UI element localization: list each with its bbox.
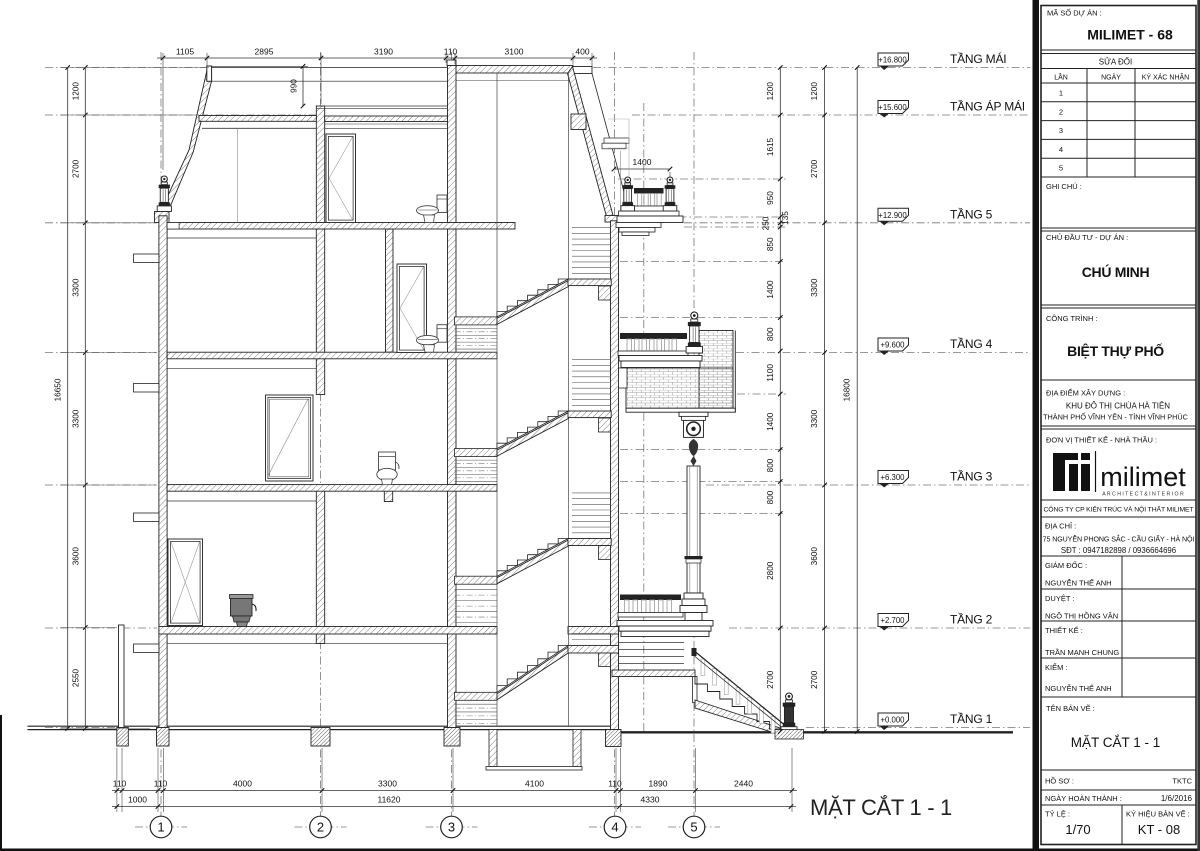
svg-text:ĐỊA CHỈ :: ĐỊA CHỈ :	[1045, 522, 1076, 531]
svg-text:75 NGUYỄN PHONG SẮC - CẦU GIẤY: 75 NGUYỄN PHONG SẮC - CẦU GIẤY - HÀ NỘI	[1043, 534, 1195, 544]
svg-text:400: 400	[575, 47, 589, 57]
svg-text:+16.800: +16.800	[878, 56, 907, 65]
svg-text:800: 800	[766, 327, 775, 341]
svg-text:2440: 2440	[734, 779, 753, 789]
svg-text:MÃ SỐ DỰ ÁN :: MÃ SỐ DỰ ÁN :	[1047, 8, 1102, 18]
svg-text:1000: 1000	[128, 795, 147, 805]
svg-text:2700: 2700	[72, 159, 81, 178]
svg-text:+2.700: +2.700	[880, 616, 905, 625]
svg-text:110: 110	[113, 779, 127, 789]
svg-text:1400: 1400	[766, 280, 775, 299]
svg-text:SĐT : 0947182898 / 0936664696: SĐT : 0947182898 / 0936664696	[1061, 546, 1176, 555]
svg-text:2550: 2550	[72, 668, 81, 687]
svg-text:NGÔ THỊ HỒNG VÂN: NGÔ THỊ HỒNG VÂN	[1045, 611, 1118, 621]
svg-text:1200: 1200	[72, 82, 81, 101]
svg-text:3: 3	[1059, 126, 1063, 135]
svg-text:KHU ĐÔ THỊ CHÙA HÀ TIÊN: KHU ĐÔ THỊ CHÙA HÀ TIÊN	[1066, 402, 1170, 411]
svg-text:1/70: 1/70	[1065, 822, 1090, 837]
svg-text:3: 3	[448, 820, 455, 835]
svg-text:KT - 08: KT - 08	[1138, 822, 1180, 837]
svg-text:TRẦN MẠNH CHUNG: TRẦN MẠNH CHUNG	[1045, 647, 1119, 657]
svg-text:SỬA ĐỔI: SỬA ĐỔI	[1099, 58, 1133, 67]
svg-text:ĐƠN VỊ THIẾT KẾ - NHÀ THẦU :: ĐƠN VỊ THIẾT KẾ - NHÀ THẦU :	[1046, 435, 1157, 445]
svg-text:KÝ XÁC NHẬN: KÝ XÁC NHẬN	[1142, 73, 1189, 82]
svg-text:TẦNG MÁI: TẦNG MÁI	[950, 51, 1006, 66]
svg-text:KIỂM :: KIỂM :	[1045, 663, 1068, 672]
svg-text:4000: 4000	[233, 779, 252, 789]
svg-text:3300: 3300	[72, 278, 81, 297]
svg-text:1200: 1200	[766, 82, 775, 101]
svg-text:1: 1	[1059, 89, 1063, 98]
svg-text:CÔNG TRÌNH :: CÔNG TRÌNH :	[1046, 314, 1098, 323]
svg-text:1890: 1890	[649, 779, 668, 789]
svg-text:135: 135	[781, 211, 790, 225]
svg-text:2: 2	[1059, 107, 1063, 116]
svg-text:4: 4	[611, 820, 618, 835]
svg-text:TKTC: TKTC	[1172, 777, 1192, 786]
svg-text:THÀNH PHỐ VĨNH YÊN - TỈNH VĨNH: THÀNH PHỐ VĨNH YÊN - TỈNH VĨNH PHÚC	[1043, 412, 1188, 422]
svg-text:3300: 3300	[810, 409, 819, 428]
svg-text:5: 5	[690, 820, 697, 835]
svg-text:CHÚ MINH: CHÚ MINH	[1082, 263, 1150, 280]
svg-text:+6.300: +6.300	[880, 473, 905, 482]
svg-text:16650: 16650	[54, 378, 63, 401]
svg-text:DUYỆT :: DUYỆT :	[1045, 594, 1074, 603]
svg-text:3600: 3600	[72, 547, 81, 566]
svg-text:3600: 3600	[810, 547, 819, 566]
svg-text:250: 250	[762, 216, 771, 230]
svg-text:MILIMET - 68: MILIMET - 68	[1087, 27, 1173, 43]
svg-text:HỒ SƠ :: HỒ SƠ :	[1045, 776, 1074, 786]
svg-text:5: 5	[1059, 164, 1063, 173]
svg-text:GHI CHÚ :: GHI CHÚ :	[1046, 182, 1082, 191]
svg-text:110: 110	[444, 47, 458, 57]
svg-text:1400: 1400	[766, 412, 775, 431]
svg-text:2700: 2700	[810, 159, 819, 178]
svg-text:990: 990	[290, 79, 299, 93]
svg-text:NGUYỄN THẾ ANH: NGUYỄN THẾ ANH	[1045, 683, 1112, 693]
svg-text:ĐỊA ĐIỂM XÂY DỰNG :: ĐỊA ĐIỂM XÂY DỰNG :	[1046, 389, 1125, 398]
svg-text:TÊN BẢN VẼ :: TÊN BẢN VẼ :	[1046, 704, 1095, 713]
svg-text:800: 800	[766, 458, 775, 472]
svg-text:4330: 4330	[641, 795, 660, 805]
svg-text:+9.600: +9.600	[880, 341, 905, 350]
svg-text:1400: 1400	[633, 157, 652, 167]
svg-text:3300: 3300	[810, 278, 819, 297]
svg-text:4100: 4100	[525, 779, 544, 789]
svg-text:BIỆT THỰ PHỐ: BIỆT THỰ PHỐ	[1067, 342, 1164, 359]
svg-text:TẦNG 2: TẦNG 2	[950, 612, 993, 627]
svg-text:950: 950	[766, 191, 775, 205]
svg-text:1105: 1105	[176, 47, 195, 57]
svg-text:1100: 1100	[766, 364, 775, 382]
svg-text:2700: 2700	[766, 670, 775, 689]
svg-text:TỶ LỆ :: TỶ LỆ :	[1045, 810, 1070, 819]
svg-text:NGÀY: NGÀY	[1101, 73, 1121, 82]
svg-text:+12.900: +12.900	[878, 211, 907, 220]
svg-text:4: 4	[1059, 145, 1063, 154]
svg-text:1615: 1615	[766, 137, 775, 156]
svg-text:TẦNG ÁP MÁI: TẦNG ÁP MÁI	[950, 99, 1025, 114]
svg-text:16800: 16800	[842, 378, 851, 401]
svg-text:2: 2	[317, 820, 324, 835]
svg-text:3100: 3100	[505, 47, 524, 57]
svg-text:1: 1	[157, 820, 164, 835]
svg-text:800: 800	[766, 490, 775, 504]
svg-text:MẶT CẮT 1 - 1: MẶT CẮT 1 - 1	[1071, 735, 1161, 750]
svg-text:KÝ HIỆU BẢN VẼ :: KÝ HIỆU BẢN VẼ :	[1126, 810, 1190, 819]
svg-text:3300: 3300	[72, 409, 81, 428]
svg-text:NGUYỄN THẾ ANH: NGUYỄN THẾ ANH	[1045, 578, 1112, 588]
svg-text:milimet: milimet	[1100, 462, 1186, 492]
svg-text:TẦNG 3: TẦNG 3	[950, 469, 993, 484]
svg-text:TẦNG 4: TẦNG 4	[950, 336, 993, 351]
svg-text:850: 850	[766, 237, 775, 251]
svg-text:2700: 2700	[810, 670, 819, 689]
svg-text:11620: 11620	[377, 795, 400, 805]
svg-text:3190: 3190	[374, 47, 393, 57]
svg-text:TẦNG 5: TẦNG 5	[950, 206, 993, 221]
svg-text:1200: 1200	[810, 82, 819, 101]
svg-text:110: 110	[154, 779, 168, 789]
svg-text:GIÁM ĐỐC :: GIÁM ĐỐC :	[1045, 560, 1087, 570]
svg-text:MẶT CẮT 1 - 1: MẶT CẮT 1 - 1	[810, 795, 952, 820]
svg-text:A R C H I T E C T & I N T E R: A R C H I T E C T & I N T E R I O R	[1102, 492, 1184, 498]
svg-text:110: 110	[608, 779, 622, 789]
svg-text:2895: 2895	[255, 47, 274, 57]
svg-text:TẦNG 1: TẦNG 1	[950, 711, 993, 726]
svg-text:NGÀY HOÀN THÀNH :: NGÀY HOÀN THÀNH :	[1045, 794, 1122, 803]
svg-text:1/6/2016: 1/6/2016	[1161, 794, 1193, 803]
svg-text:+15.600: +15.600	[878, 103, 907, 112]
svg-text:+0.000: +0.000	[880, 716, 905, 725]
svg-text:THIẾT KẾ :: THIẾT KẾ :	[1045, 625, 1083, 635]
svg-text:3300: 3300	[378, 779, 397, 789]
svg-text:2800: 2800	[766, 561, 775, 580]
svg-text:CHỦ ĐẦU TƯ - DỰ ÁN :: CHỦ ĐẦU TƯ - DỰ ÁN :	[1046, 232, 1128, 242]
